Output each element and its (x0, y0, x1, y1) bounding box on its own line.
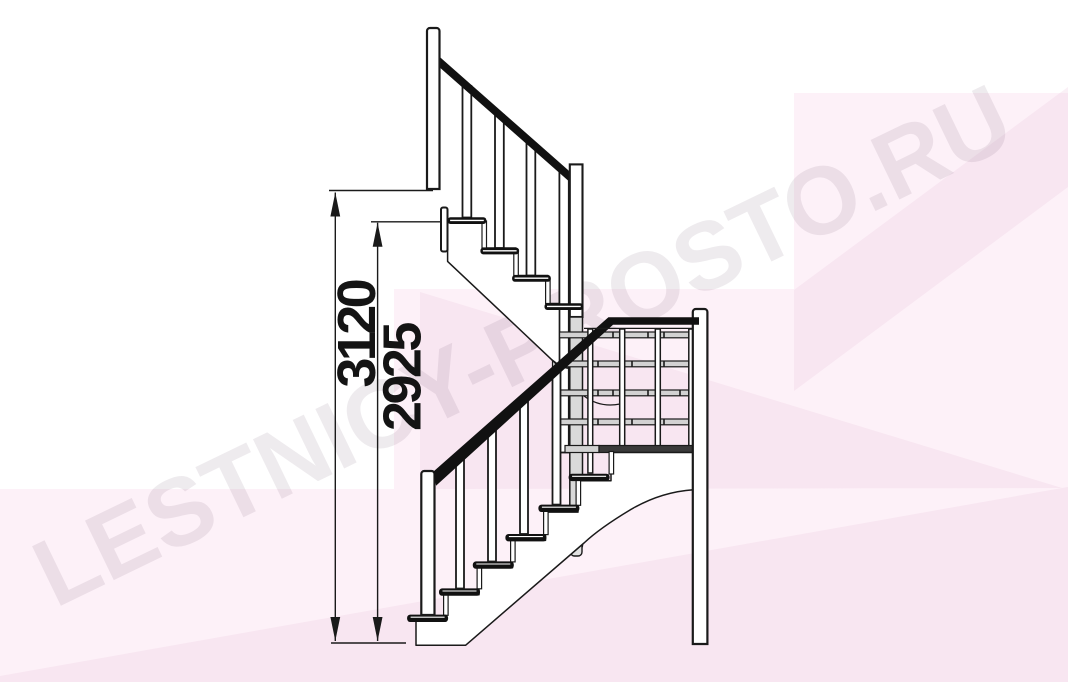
svg-text:2925: 2925 (373, 323, 433, 431)
